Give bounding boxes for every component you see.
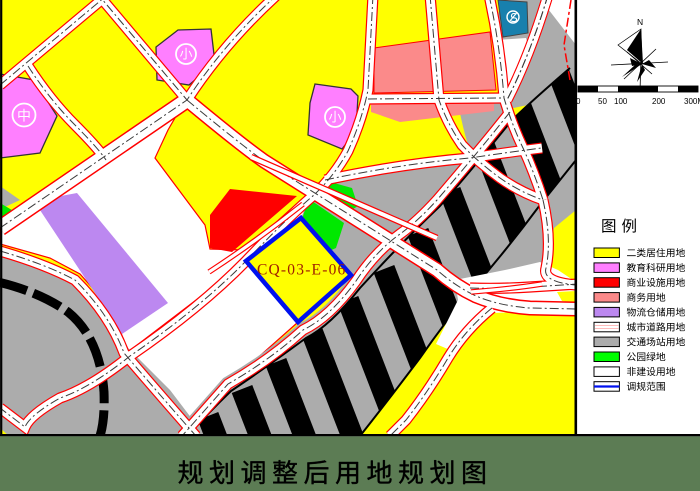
svg-text:50: 50: [598, 97, 607, 106]
svg-text:100: 100: [614, 97, 628, 106]
svg-text:N: N: [637, 17, 643, 27]
svg-text:CQ-03-E-06: CQ-03-E-06: [257, 262, 347, 279]
svg-text:200: 200: [652, 97, 666, 106]
svg-text:0: 0: [576, 97, 581, 106]
svg-text:300M: 300M: [684, 97, 700, 106]
